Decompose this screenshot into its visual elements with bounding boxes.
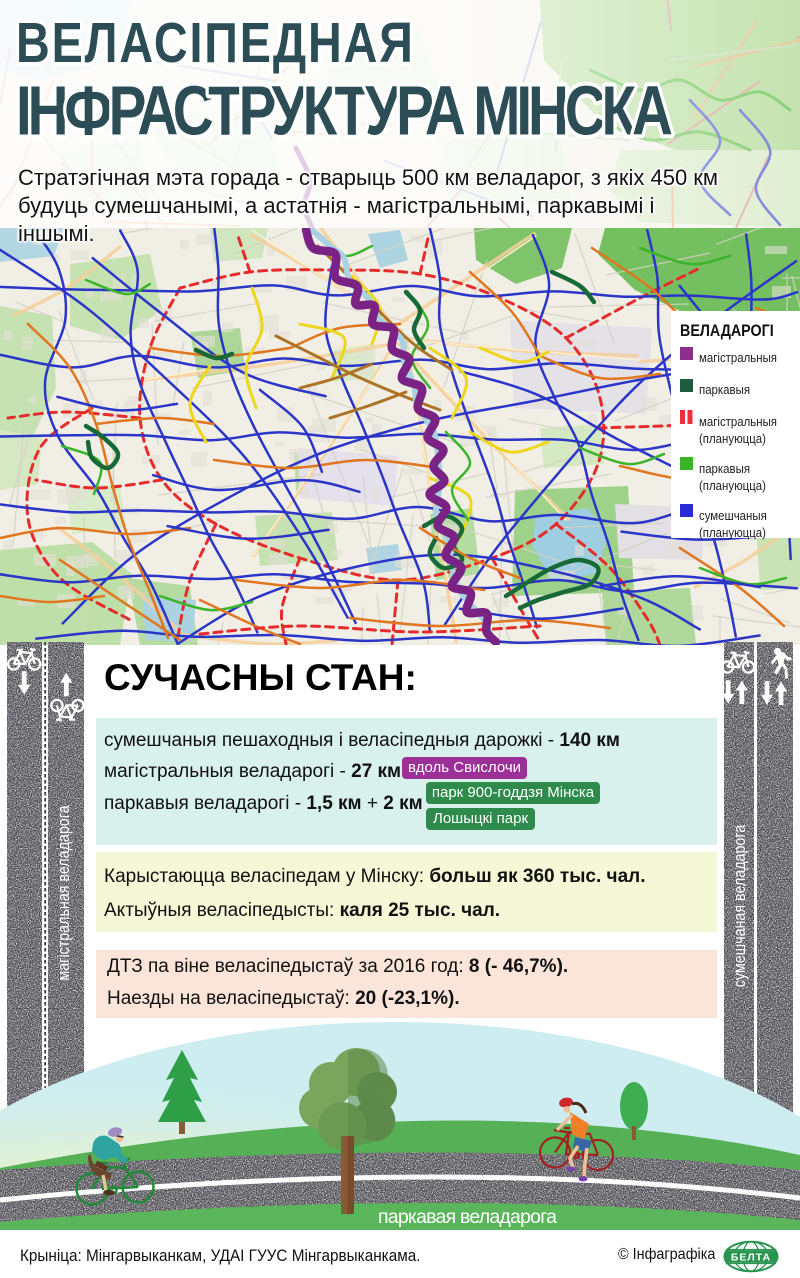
svg-text:ІНФРАСТРУКТУРА МІНСКА: ІНФРАСТРУКТУРА МІНСКА — [16, 72, 673, 150]
svg-text:паркавая веладарога: паркавая веладарога — [378, 1206, 557, 1228]
svg-text:ВЕЛАСІПЕДНАЯ: ВЕЛАСІПЕДНАЯ — [16, 12, 413, 75]
svg-text:БЕЛТА: БЕЛТА — [731, 1252, 771, 1264]
